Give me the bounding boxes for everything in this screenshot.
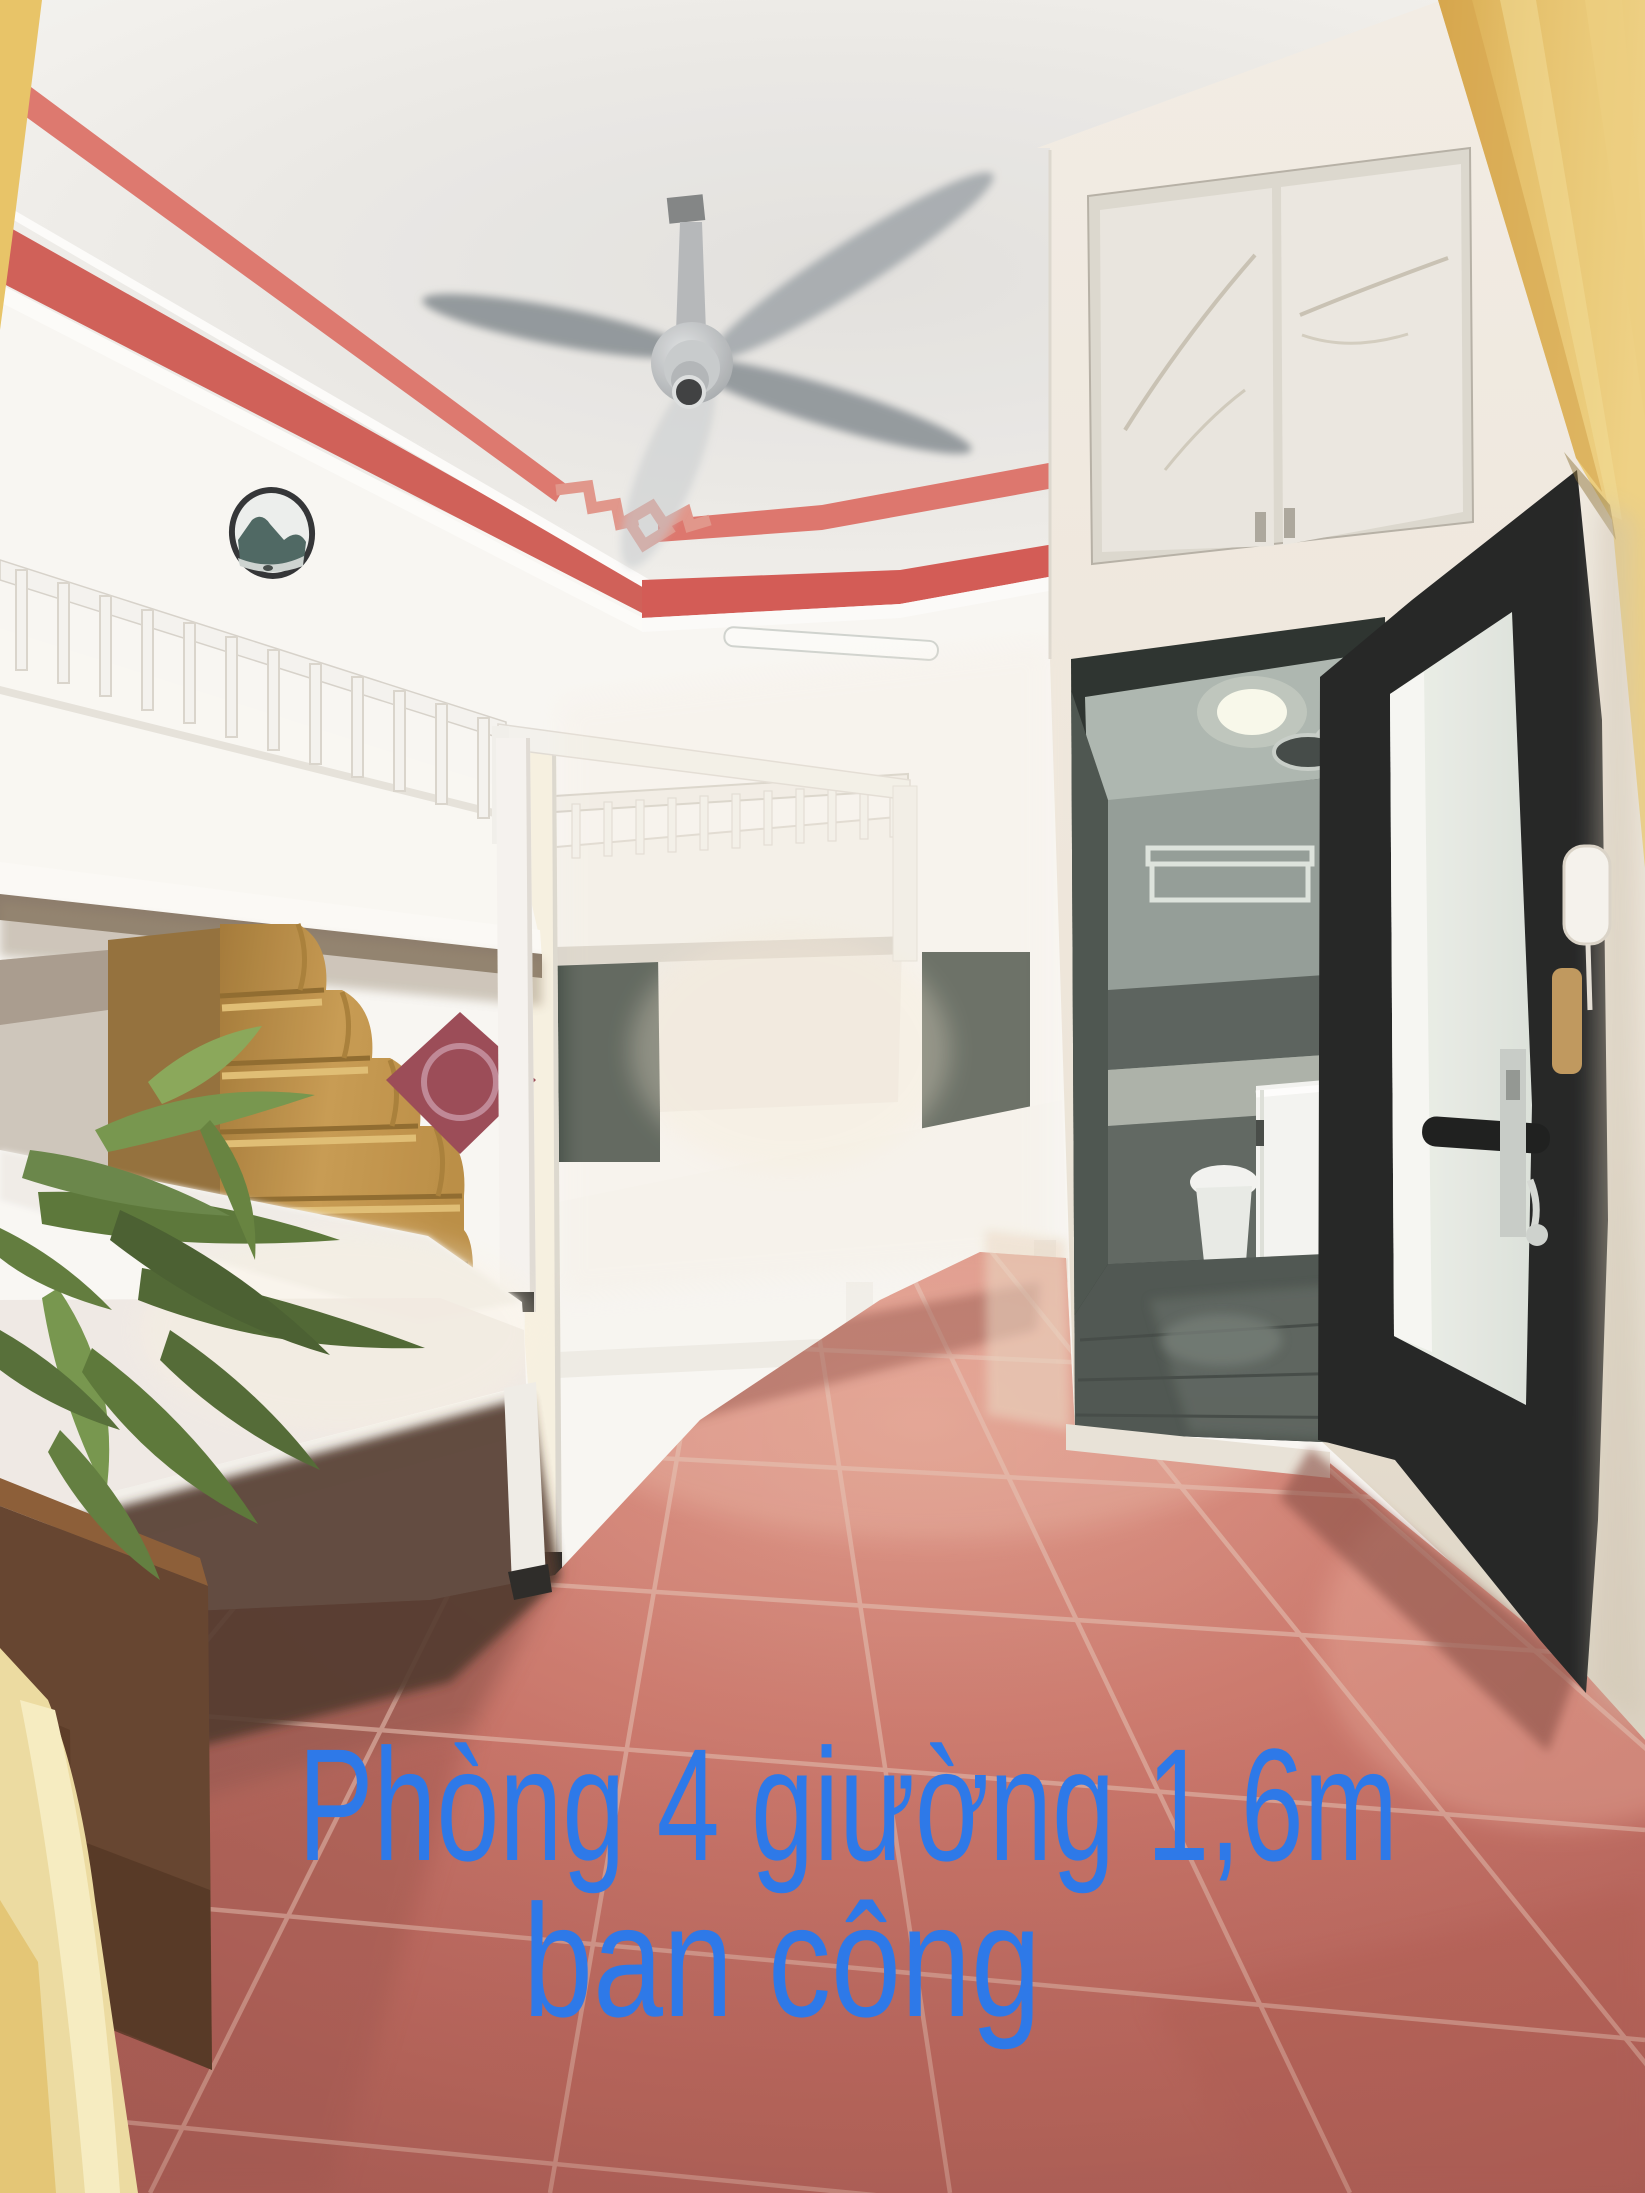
- svg-text:ban công: ban công: [523, 1871, 1041, 2050]
- svg-text:Phòng 4 giường 1,6m: Phòng 4 giường 1,6m: [298, 1715, 1398, 1894]
